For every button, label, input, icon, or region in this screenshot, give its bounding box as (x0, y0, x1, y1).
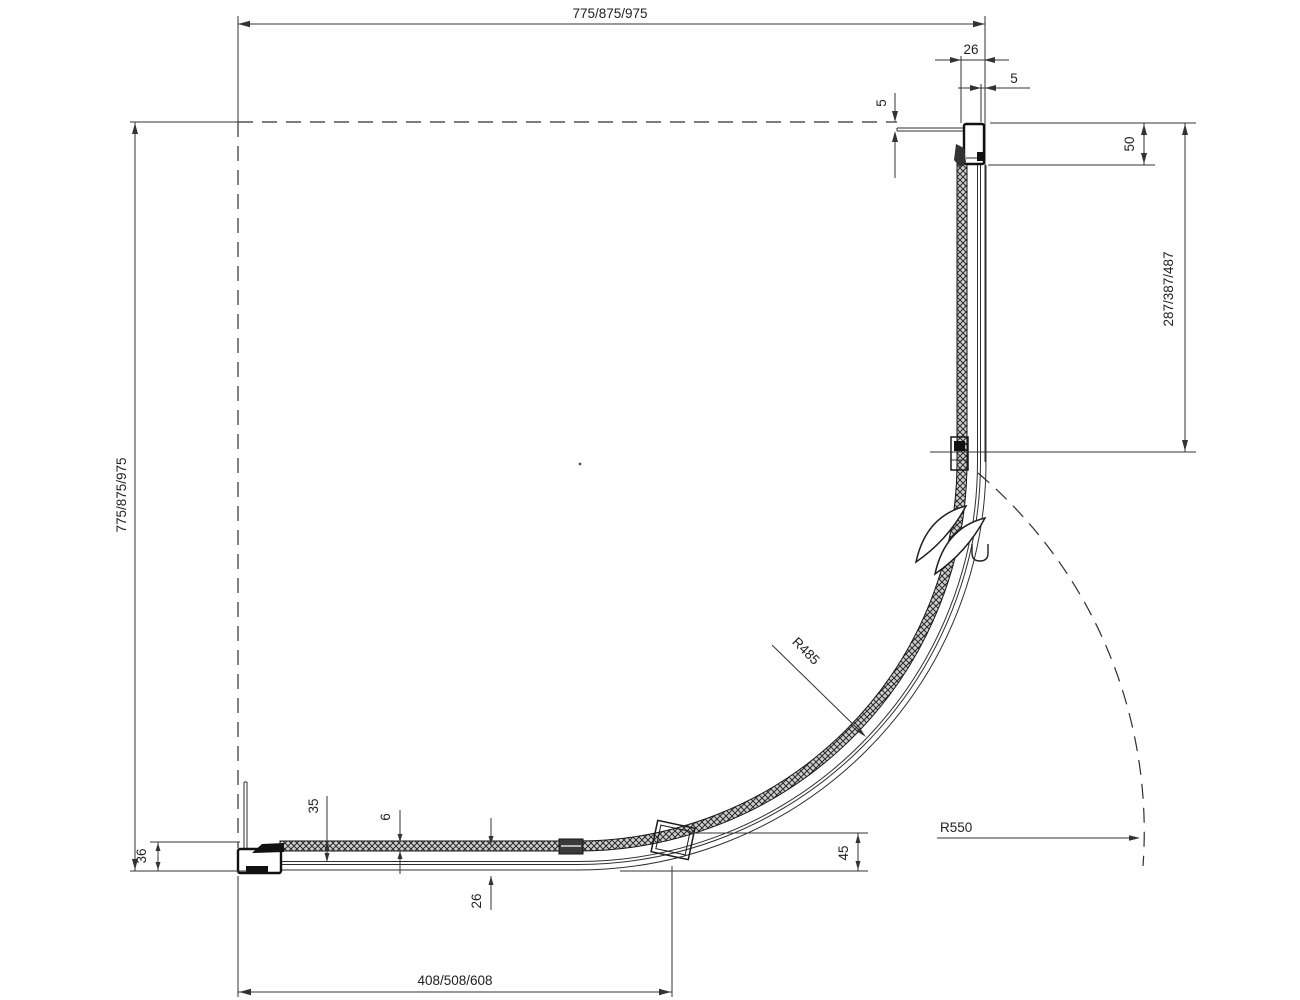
dim-wall-profile-depth-label: 36 (134, 848, 149, 863)
dim-height-left-label: 775/875/975 (114, 457, 129, 532)
dim-profile-height-label: 50 (1122, 136, 1137, 151)
dim-fixed-panel: 287/387/487 (930, 123, 1196, 452)
dim-profile-height: 50 (988, 123, 1196, 165)
dim-wall-gap-label: 5 (874, 99, 889, 107)
radius-glass-label: R485 (789, 634, 822, 667)
dim-bottom-segment-label: 408/508/608 (417, 973, 492, 988)
dim-bottom-segment: 408/508/608 (238, 866, 672, 997)
dim-glass-thickness-label: 6 (378, 813, 393, 821)
arc-center-mark (579, 463, 582, 466)
lower-glass-connector (559, 839, 583, 854)
dim-wall-gap: 5 (874, 93, 898, 178)
wall-profile-top (897, 124, 984, 167)
lower-transition-bracket (651, 820, 695, 859)
wall-profile-bottom (238, 782, 284, 873)
door-stile-cap (972, 544, 988, 561)
quadrant-shower-plan-drawing: 775/875/975 26 5 5 50 287 (0, 0, 1300, 1000)
dim-door-edge-label: 45 (836, 845, 851, 860)
dim-width-top-label: 775/875/975 (572, 6, 647, 21)
wall-lines (238, 122, 897, 848)
dim-profile-edge-gap: 5 (958, 71, 1030, 122)
radius-outer: R550 (937, 820, 1140, 841)
dim-fixed-panel-label: 287/387/487 (1161, 251, 1176, 326)
radius-outer-label: R550 (940, 820, 972, 835)
dim-wall-profile-depth: 36 (134, 842, 240, 871)
dim-profile-width: 26 (935, 42, 1009, 123)
track-rails (281, 16, 988, 870)
dim-profile-width-label: 26 (963, 42, 978, 57)
dim-track-depth-label: 26 (469, 893, 484, 908)
outer-radius-arc (978, 473, 1144, 866)
technical-drawing-page: 775/875/975 26 5 5 50 287 (0, 0, 1300, 1000)
dim-profile-edge-gap-label: 5 (1010, 71, 1018, 86)
dim-width-top: 775/875/975 (238, 6, 985, 124)
radius-glass: R485 (772, 634, 866, 737)
dim-rail-height: 35 (306, 796, 330, 862)
dim-rail-height-label: 35 (306, 798, 321, 813)
dim-height-left: 775/875/975 (114, 122, 247, 871)
